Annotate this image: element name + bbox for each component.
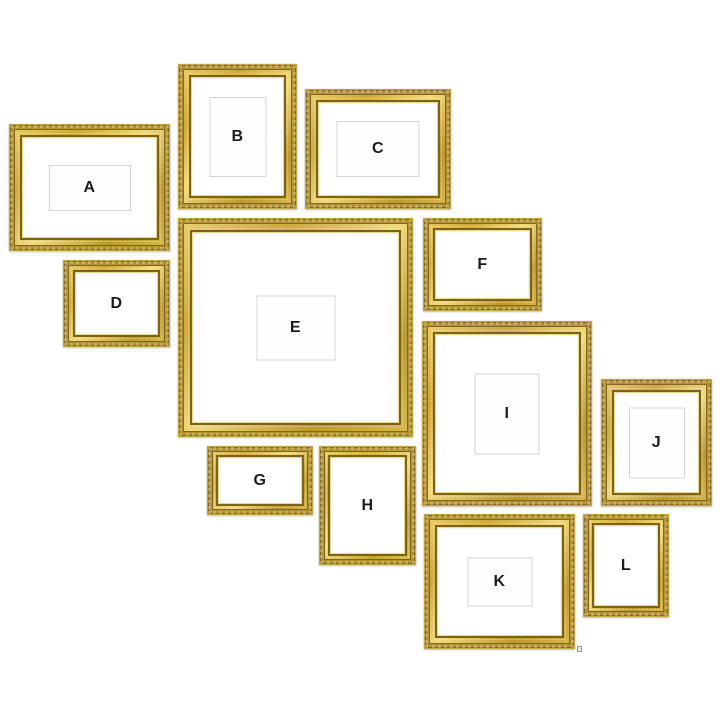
frame-mat: K: [438, 528, 561, 635]
frame-mat: G: [219, 458, 301, 503]
frame-letter: C: [372, 140, 384, 158]
frame-mat: I: [436, 335, 578, 492]
frame-mat: L: [595, 526, 657, 605]
frame-H: H: [319, 446, 416, 565]
frame-letter: F: [477, 256, 487, 274]
frame-mat: B: [192, 78, 283, 195]
frame-letter: H: [361, 497, 373, 515]
frame-C: C: [305, 89, 451, 209]
frame-mat: D: [76, 273, 157, 334]
frame-D: D: [63, 260, 170, 347]
frame-letter: I: [505, 405, 510, 423]
frame-A: A: [9, 124, 170, 251]
frame-G: G: [207, 446, 313, 515]
frame-K: K: [424, 514, 575, 649]
frame-mat: A: [23, 138, 156, 237]
gallery-wall-canvas: A B C D E F: [0, 0, 720, 720]
frame-mat: F: [436, 231, 529, 298]
frame-I: I: [422, 321, 592, 506]
frame-letter: G: [254, 472, 267, 490]
frame-mat: E: [193, 233, 398, 422]
frame-letter: J: [652, 434, 661, 452]
frame-B: B: [178, 64, 297, 209]
frame-E: E: [178, 218, 413, 437]
frame-letter: K: [493, 573, 505, 591]
frame-mat: J: [615, 393, 698, 492]
frame-J: J: [601, 379, 712, 506]
frame-letter: E: [290, 319, 301, 337]
frame-F: F: [423, 218, 542, 311]
frame-letter: B: [231, 128, 243, 146]
frame-mat: C: [319, 103, 437, 195]
frame-letter: D: [110, 295, 122, 313]
frame-mat: H: [331, 458, 404, 553]
frame-letter: A: [83, 179, 95, 197]
frame-L: L: [583, 514, 669, 617]
watermark-mark-icon: [577, 646, 582, 652]
frame-letter: L: [621, 557, 631, 575]
